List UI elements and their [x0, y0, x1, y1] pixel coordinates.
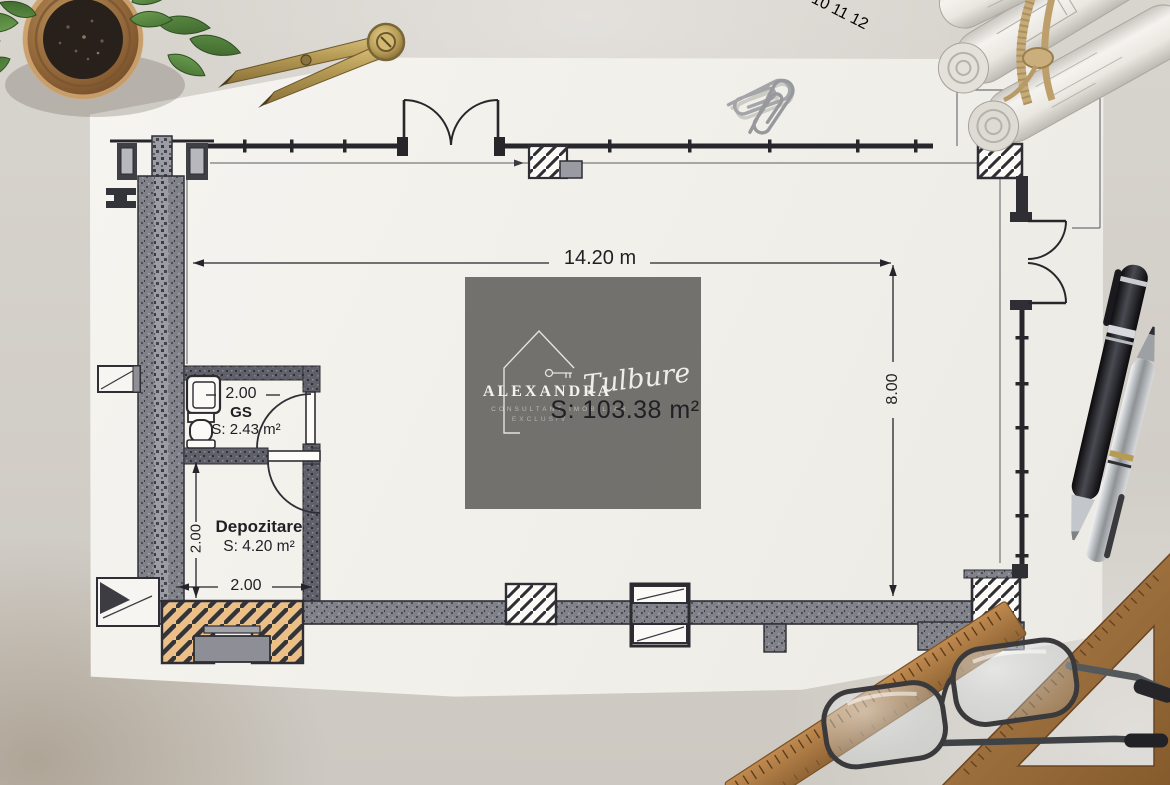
toilet [187, 413, 215, 448]
eyeglasses [790, 630, 1170, 785]
compass-legs [218, 35, 384, 108]
gs-door [257, 392, 315, 448]
glasses-lens-right [949, 636, 1080, 728]
top-center-column [529, 146, 582, 178]
bottom-left-corner [97, 578, 159, 626]
rolled-blueprints [920, 0, 1170, 185]
left-party-wall [138, 176, 184, 606]
watermark-tagline-2: EXCLUSIV [485, 416, 595, 423]
drafting-compass [210, 0, 430, 115]
leader-arrow [514, 160, 524, 167]
entrance-steps [162, 601, 303, 663]
plant-soil [43, 0, 123, 79]
gs-window [98, 366, 140, 392]
compass-pivot [368, 24, 404, 60]
watermark-tagline-1: CONSULTANT IMOBILIAR [485, 406, 635, 413]
watermark-box: ALEXANDRA Tulbure CONSULTANT IMOBILIAR E… [465, 277, 701, 509]
desk-scene: ALEXANDRA Tulbure CONSULTANT IMOBILIAR E… [0, 0, 1170, 785]
